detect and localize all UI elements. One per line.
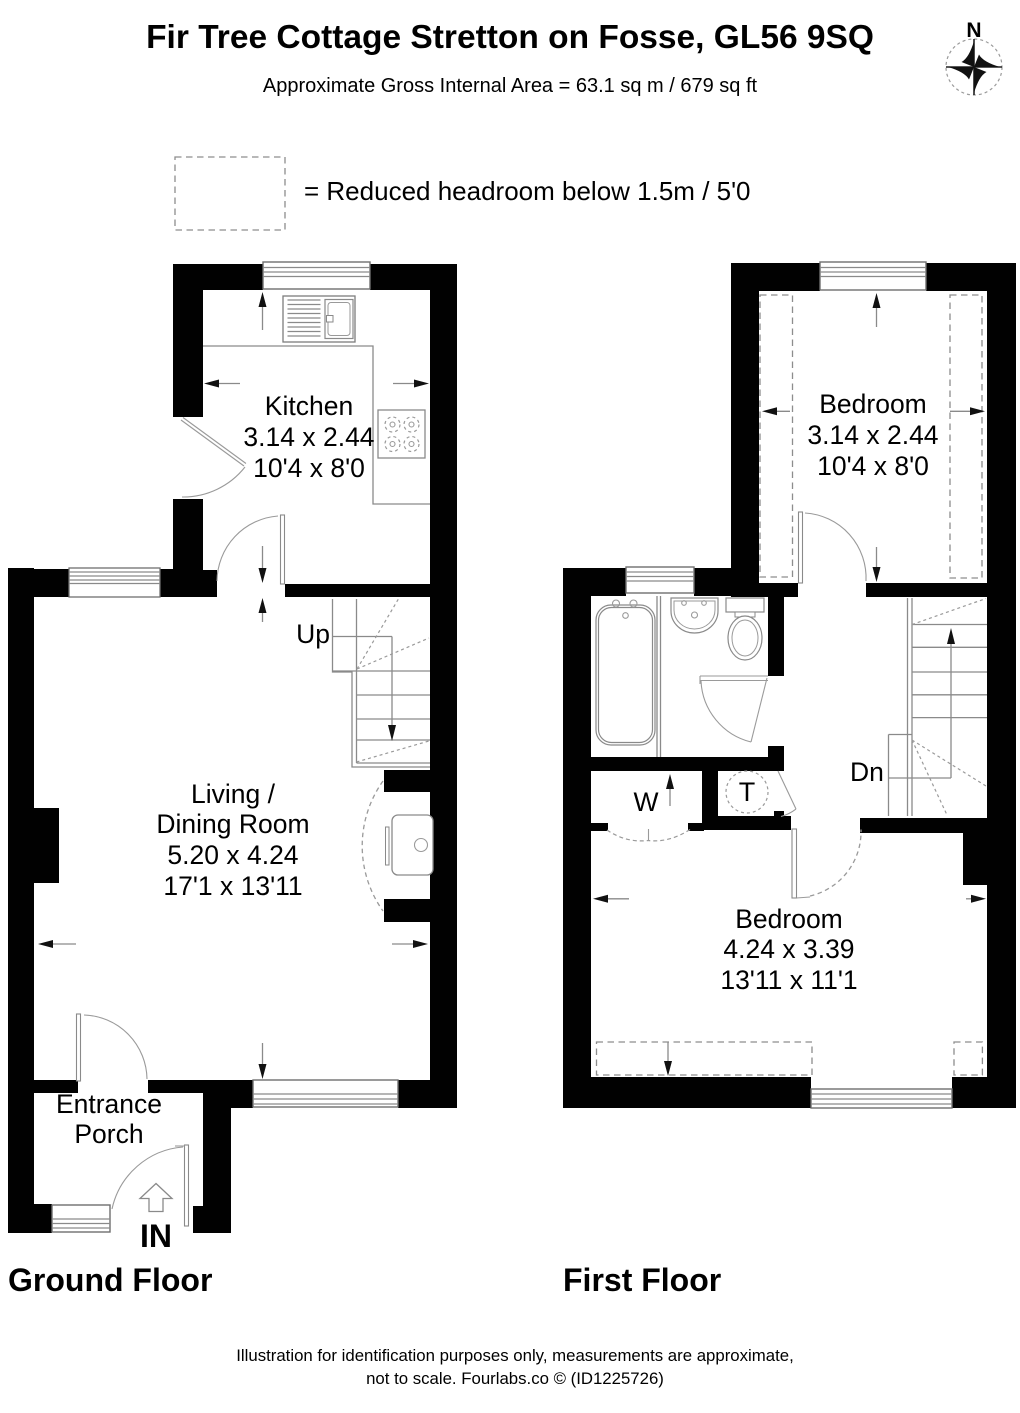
svg-text:10'4 x 8'0: 10'4 x 8'0 [253,453,365,483]
svg-text:10'4 x 8'0: 10'4 x 8'0 [817,451,929,481]
svg-text:13'11 x 11'1: 13'11 x 11'1 [720,965,857,995]
svg-text:T: T [739,777,756,807]
svg-text:17'1 x 13'11: 17'1 x 13'11 [163,871,302,901]
svg-text:Up: Up [296,619,330,649]
svg-text:Fir Tree Cottage Stretton on F: Fir Tree Cottage Stretton on Fosse, GL56… [146,19,874,56]
svg-text:3.14 x 2.44: 3.14 x 2.44 [807,420,938,450]
svg-text:N: N [966,19,981,42]
svg-text:not to scale. Fourlabs.co © (I: not to scale. Fourlabs.co © (ID1225726) [366,1369,664,1388]
svg-text:Bedroom: Bedroom [819,389,927,419]
svg-text:Porch: Porch [74,1119,143,1149]
svg-text:IN: IN [140,1218,172,1254]
svg-text:5.20 x 4.24: 5.20 x 4.24 [167,840,298,870]
svg-text:Kitchen: Kitchen [265,391,353,421]
svg-text:First Floor: First Floor [563,1262,721,1298]
svg-text:3.14 x 2.44: 3.14 x 2.44 [243,422,374,452]
svg-text:Bedroom: Bedroom [735,904,843,934]
svg-text:Approximate Gross Internal Are: Approximate Gross Internal Area = 63.1 s… [263,75,758,97]
svg-text:= Reduced headroom below 1.5m: = Reduced headroom below 1.5m / 5'0 [304,176,751,206]
svg-text:Illustration for identificatio: Illustration for identification purposes… [236,1346,793,1365]
svg-text:Dining Room: Dining Room [156,809,309,839]
svg-text:4.24 x 3.39: 4.24 x 3.39 [723,934,854,964]
svg-text:Dn: Dn [850,757,884,787]
svg-text:W: W [633,787,658,817]
svg-text:Living /: Living / [191,779,276,809]
svg-text:Ground Floor: Ground Floor [8,1262,212,1298]
svg-text:Entrance: Entrance [56,1089,162,1119]
